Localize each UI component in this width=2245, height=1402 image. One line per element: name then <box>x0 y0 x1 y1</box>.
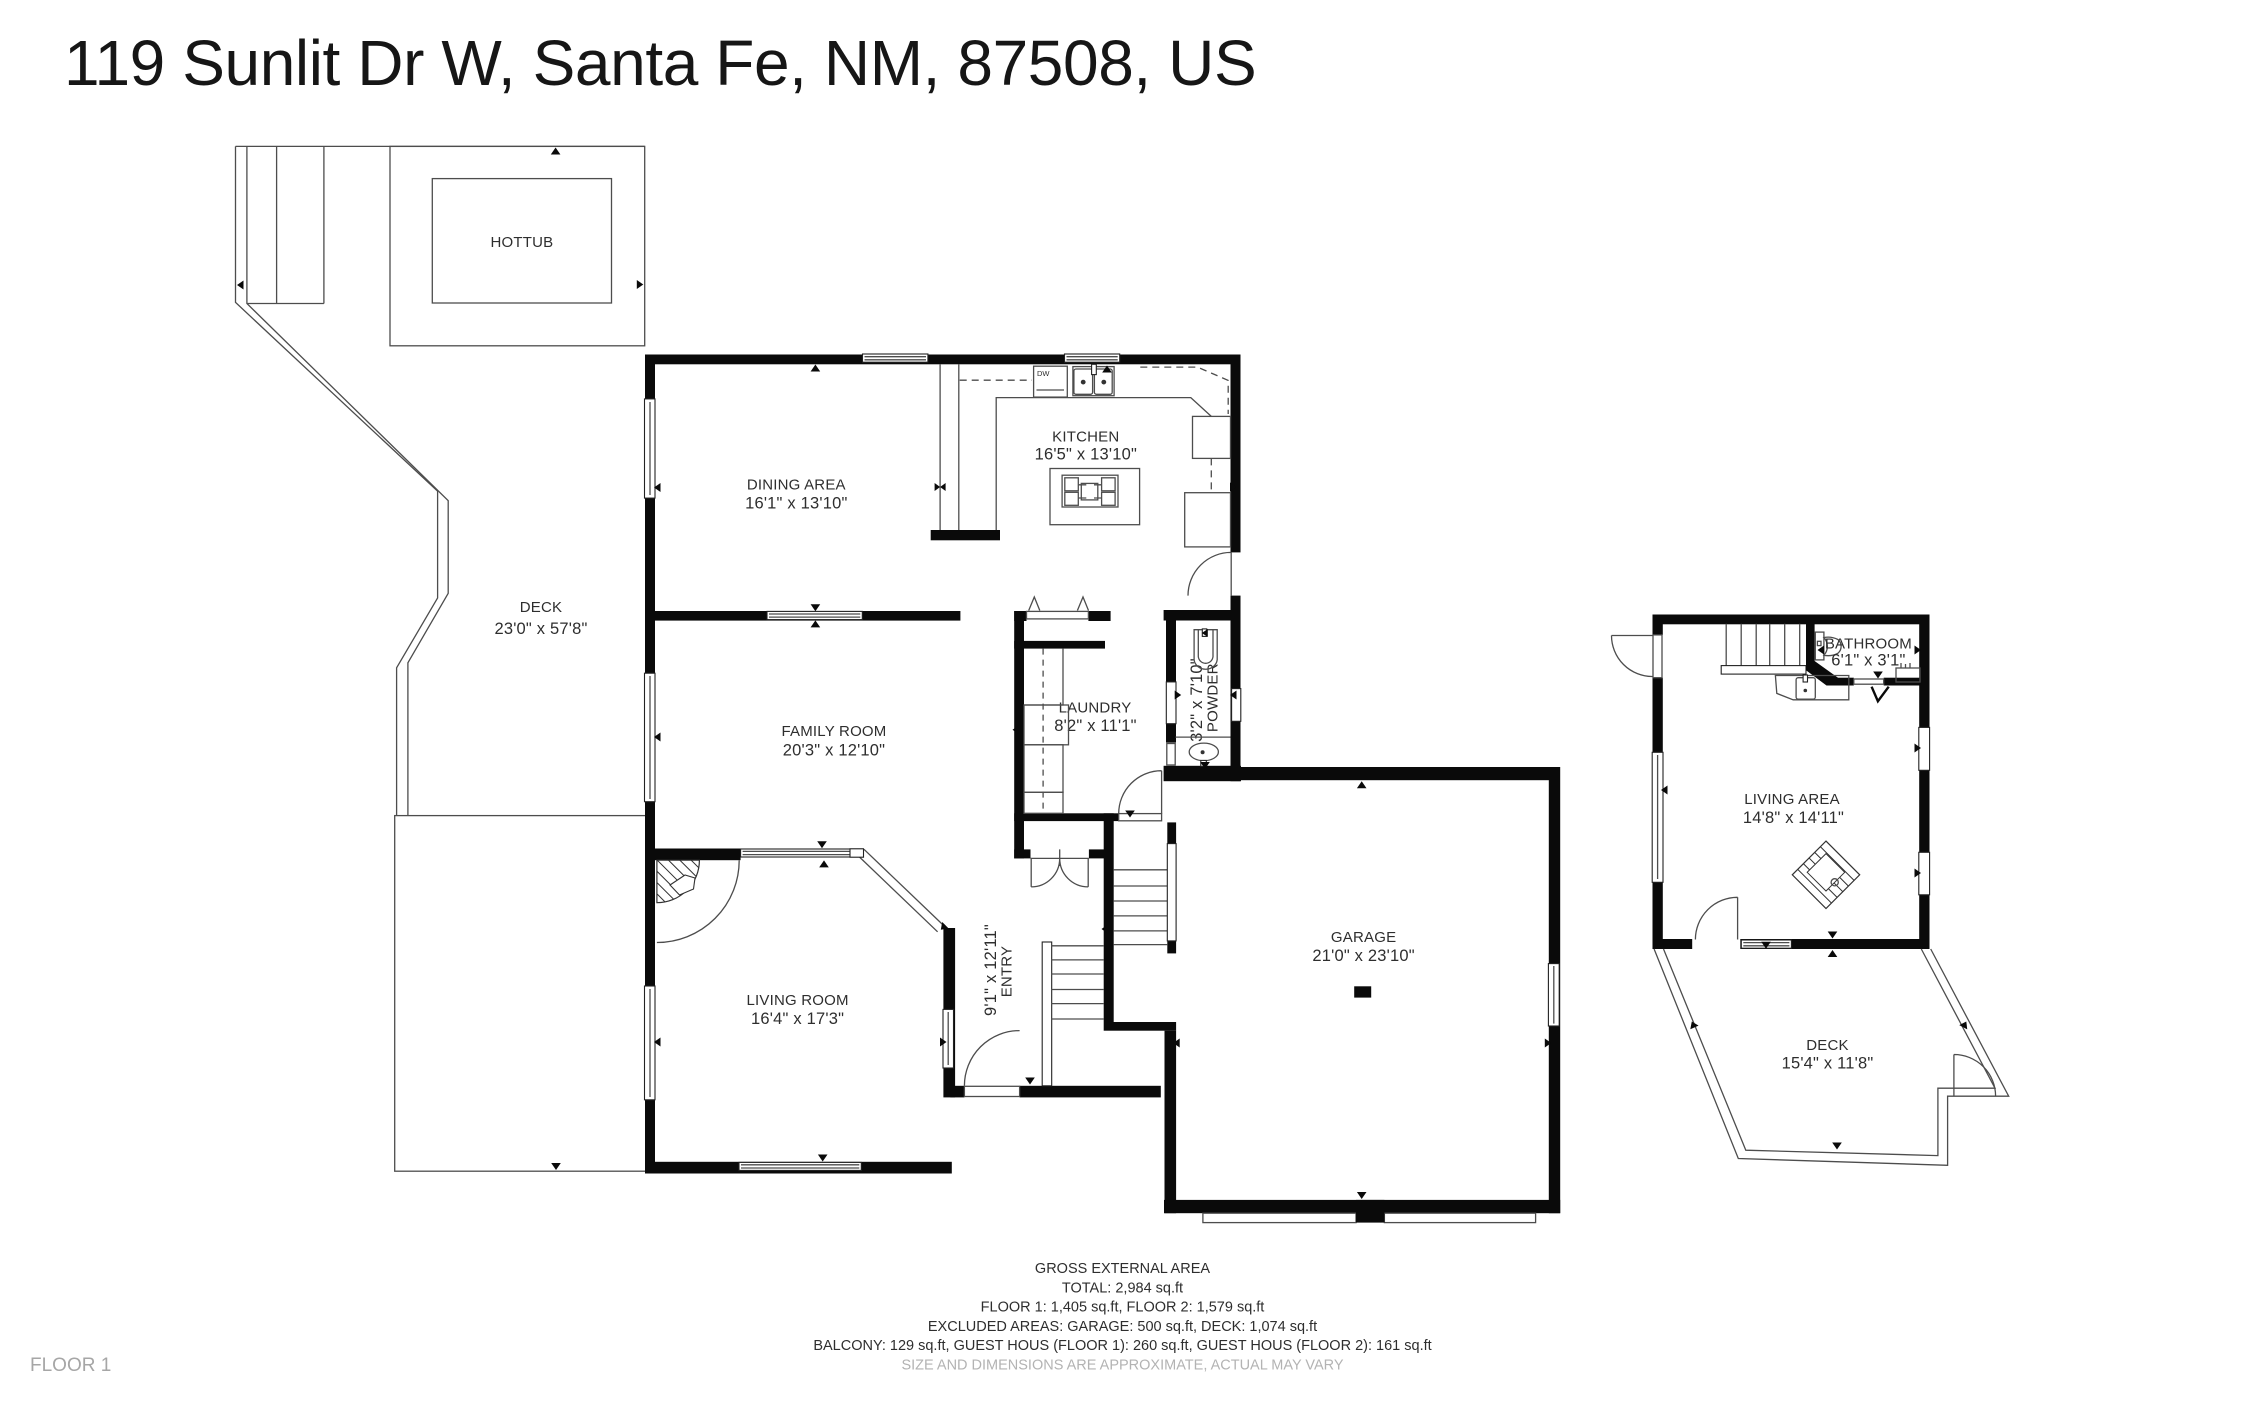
svg-text:POWDER: POWDER <box>1204 663 1221 732</box>
svg-text:20'3" x 12'10": 20'3" x 12'10" <box>783 742 885 760</box>
svg-text:21'0" x 23'10": 21'0" x 23'10" <box>1312 947 1414 965</box>
svg-text:FAMILY ROOM: FAMILY ROOM <box>782 723 887 740</box>
svg-text:FLOOR 1: 1,405 sq.ft, FLOOR 2:: FLOOR 1: 1,405 sq.ft, FLOOR 2: 1,579 sq.… <box>981 1300 1265 1316</box>
svg-text:15'4" x 11'8": 15'4" x 11'8" <box>1782 1055 1874 1073</box>
svg-text:16'5" x 13'10": 16'5" x 13'10" <box>1035 446 1137 464</box>
svg-text:16'4" x 17'3": 16'4" x 17'3" <box>751 1010 844 1028</box>
svg-text:8'2" x 11'1": 8'2" x 11'1" <box>1054 717 1137 735</box>
svg-text:GARAGE: GARAGE <box>1331 929 1396 946</box>
svg-text:DINING AREA: DINING AREA <box>747 477 846 494</box>
svg-text:ENTRY: ENTRY <box>998 946 1015 998</box>
svg-text:GROSS EXTERNAL AREA: GROSS EXTERNAL AREA <box>1035 1261 1210 1277</box>
svg-text:9'1" x 12'11": 9'1" x 12'11" <box>982 924 1000 1016</box>
svg-text:6'1" x 3'1": 6'1" x 3'1" <box>1831 652 1905 670</box>
svg-text:TOTAL: 2,984 sq.ft: TOTAL: 2,984 sq.ft <box>1062 1280 1183 1296</box>
svg-text:BATHROOM: BATHROOM <box>1825 636 1912 653</box>
svg-text:EXCLUDED AREAS: GARAGE: 500 sq: EXCLUDED AREAS: GARAGE: 500 sq.ft, DECK:… <box>928 1319 1317 1335</box>
svg-text:FLOOR 1: FLOOR 1 <box>30 1355 111 1376</box>
svg-text:119 Sunlit Dr W, Santa Fe, NM,: 119 Sunlit Dr W, Santa Fe, NM, 87508, US <box>64 27 1256 99</box>
svg-text:KITCHEN: KITCHEN <box>1052 429 1119 446</box>
svg-text:DECK: DECK <box>1806 1037 1848 1054</box>
svg-text:LIVING ROOM: LIVING ROOM <box>746 992 848 1009</box>
svg-text:3'2" x 7'10": 3'2" x 7'10" <box>1188 658 1206 742</box>
svg-text:LIVING AREA: LIVING AREA <box>1744 791 1840 808</box>
svg-text:14'8" x 14'11": 14'8" x 14'11" <box>1743 809 1844 827</box>
svg-text:16'1" x 13'10": 16'1" x 13'10" <box>745 495 847 513</box>
svg-text:DW: DW <box>1037 369 1050 378</box>
svg-text:SIZE AND DIMENSIONS ARE APPROX: SIZE AND DIMENSIONS ARE APPROXIMATE, ACT… <box>901 1358 1343 1374</box>
svg-text:LAUNDRY: LAUNDRY <box>1059 700 1132 717</box>
svg-text:HOTTUB: HOTTUB <box>490 234 553 251</box>
svg-text:DECK: DECK <box>520 599 562 616</box>
svg-text:23'0" x 57'8": 23'0" x 57'8" <box>494 620 587 638</box>
svg-text:BALCONY: 129 sq.ft, GUEST HOUS: BALCONY: 129 sq.ft, GUEST HOUS (FLOOR 1)… <box>813 1338 1431 1354</box>
